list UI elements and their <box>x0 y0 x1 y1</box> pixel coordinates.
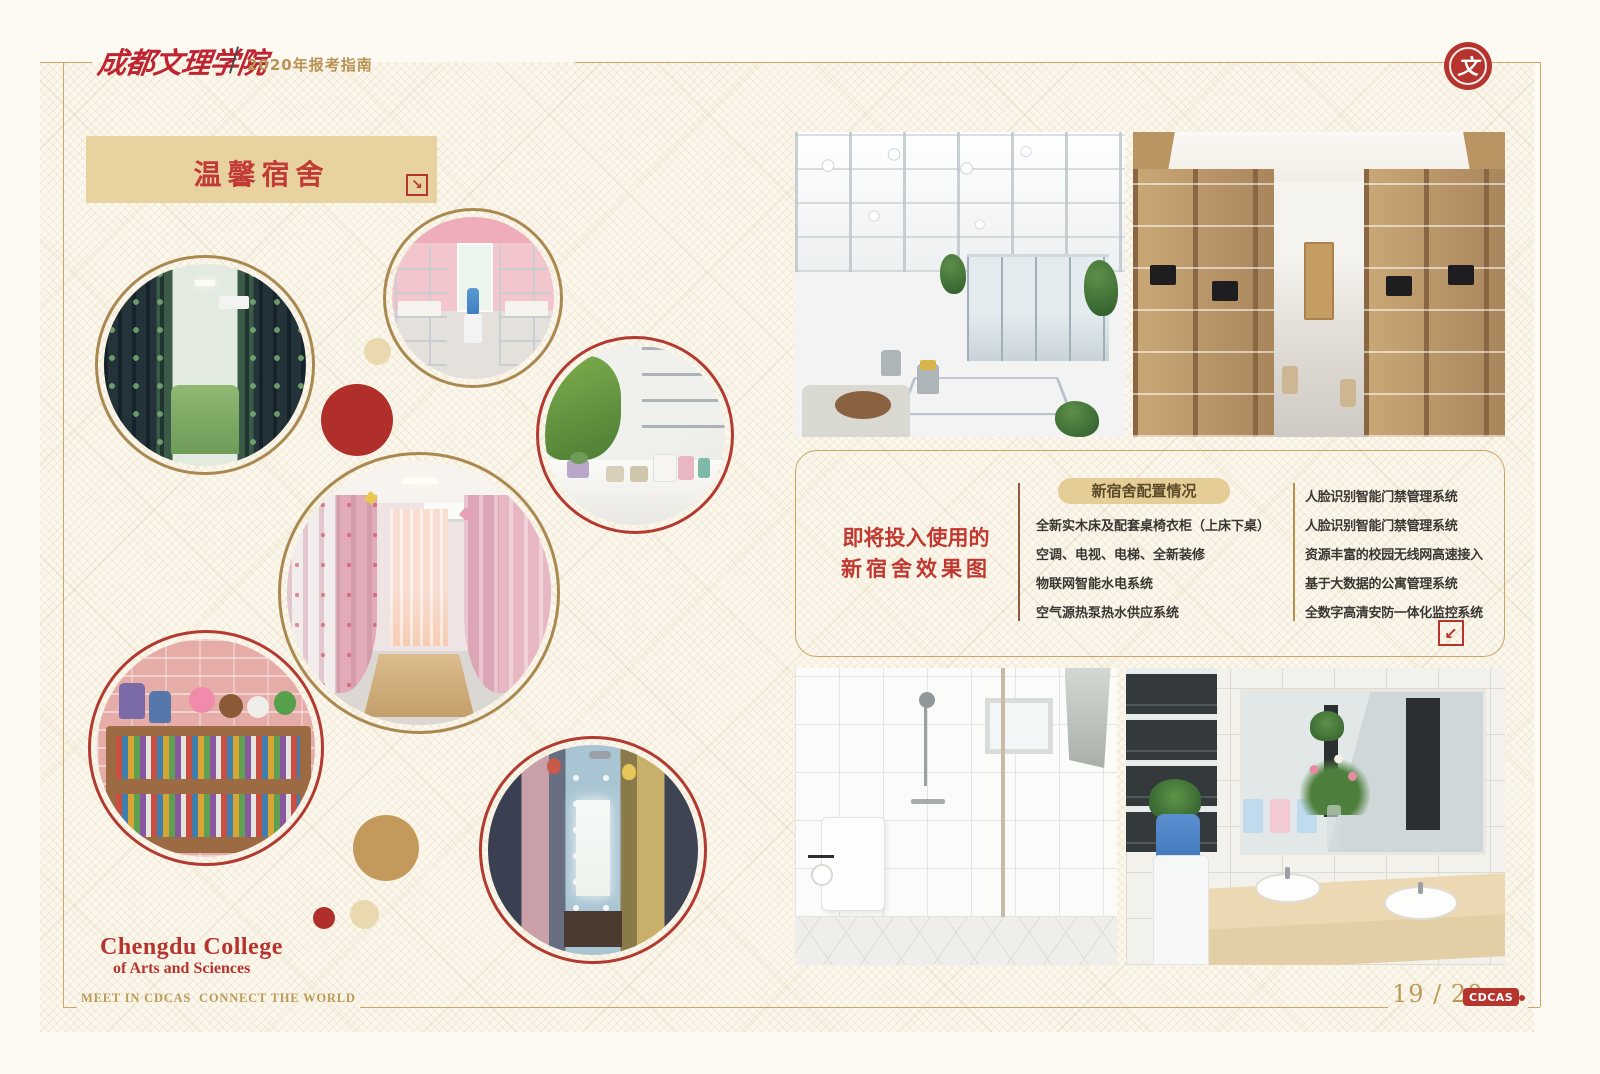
photo-circle-pink-curtain-room <box>278 452 560 734</box>
config-item: 空气源热泵热水供应系统 <box>1036 599 1270 628</box>
decor-dot-cream-top <box>364 338 391 365</box>
info-intro-line2: 新宿舍效果图 <box>824 554 1008 585</box>
curtains-left <box>287 495 377 693</box>
dark-table <box>564 911 623 947</box>
frame-line-right <box>1540 62 1541 1007</box>
balloon-decor-red <box>547 758 561 774</box>
bunk-desk-units-right <box>1364 169 1505 437</box>
water-jug <box>467 288 480 314</box>
towel-blue-1 <box>1243 799 1263 833</box>
succulent-plant <box>570 452 588 464</box>
colorful-dorm-photo <box>488 745 698 955</box>
decor-dot-red-large <box>321 384 393 456</box>
bright-window <box>576 800 610 897</box>
admission-guide-label: 2020年报考指南 <box>247 54 373 75</box>
bed-right <box>505 301 547 316</box>
door <box>1304 242 1334 320</box>
info-intro-line1: 即将投入使用的 <box>824 523 1008 554</box>
faucet-left <box>1285 867 1290 879</box>
photo-circle-pink-dorm <box>383 208 563 388</box>
beige-pot-2 <box>630 466 648 482</box>
plush-white-toy <box>247 696 269 718</box>
toilet-paper-roll <box>811 864 833 886</box>
decor-dot-cream-bottom <box>350 900 379 929</box>
frame-line-bottom-seg2 <box>360 1007 1388 1008</box>
photo-circle-forest-theme-dorm <box>95 255 315 475</box>
photo-circle-succulent-shelf <box>536 336 734 534</box>
cdcas-logo-badge: CDCAS <box>1463 988 1519 1006</box>
cistern <box>821 817 885 911</box>
paper-holder-bar <box>808 855 834 858</box>
towel-pink <box>1270 799 1290 833</box>
foreground-plant <box>1055 401 1099 437</box>
ceiling-fan <box>589 751 611 759</box>
sheer-center-curtain <box>390 509 448 646</box>
green-bedspread <box>171 385 240 454</box>
ceiling-light <box>195 280 215 286</box>
plush-bear-toy <box>219 694 243 718</box>
coffered-ceiling <box>795 132 1125 272</box>
wooden-table <box>364 654 475 717</box>
monitor-dark-1 <box>1150 265 1176 285</box>
water-dispenser <box>1153 855 1209 965</box>
frame-line-top-left-segment <box>40 62 92 63</box>
hanging-towel <box>1065 668 1111 768</box>
flower-vase <box>1327 805 1341 849</box>
frame-line-bottom-seg1 <box>63 1007 77 1008</box>
bed-left <box>398 301 440 316</box>
air-conditioner <box>219 296 249 309</box>
footer-slogan: MEET IN CDCAS CONNECT THE WORLD <box>81 991 356 1006</box>
config-item: 人脸识别智能门禁管理系统 <box>1305 512 1483 541</box>
window <box>985 698 1053 754</box>
config-item: 人脸识别智能门禁管理系统 <box>1305 483 1483 512</box>
green-cloth <box>545 356 621 460</box>
chair-2 <box>881 350 901 376</box>
config-badge: 新宿舍配置情况 <box>1058 478 1230 504</box>
faucet-right <box>1418 882 1423 894</box>
seal-glyph: 文 <box>1444 42 1492 90</box>
pink-dorm-photo <box>392 217 554 379</box>
brochure-page: 成都文理学院 2020年报考指南 文 温馨宿舍 ↘ <box>0 0 1600 1074</box>
mirror-reflection-frame-2 <box>1406 698 1440 830</box>
luggage-blue <box>149 691 171 723</box>
new-dorm-info-box: 即将投入使用的 新宿舍效果图 新宿舍配置情况 全新实木床及配套桌椅衣柜（上床下桌… <box>795 450 1505 657</box>
forest-curtain-left <box>104 264 165 466</box>
frame-line-bottom-seg3 <box>1528 1007 1540 1008</box>
round-table <box>835 391 891 418</box>
divider-maroon <box>1018 483 1020 621</box>
metal-rack <box>642 345 725 428</box>
school-seal-icon: 文 <box>1444 42 1492 90</box>
pink-curtain-room-photo <box>287 461 551 725</box>
chair-left <box>1282 366 1298 394</box>
plush-dino-toy <box>274 691 296 715</box>
mirror-reflection-plant <box>1310 711 1344 741</box>
yellow-cushion <box>920 360 936 370</box>
photo-circle-colorful-dorm <box>479 736 707 964</box>
monitor-dark-2 <box>1212 281 1238 301</box>
photo-shower-room <box>795 668 1117 965</box>
config-item: 空调、电视、电梯、全新装修 <box>1036 541 1270 570</box>
plant-on-dispenser <box>1149 779 1201 819</box>
corner-arrow-icon: ↘ <box>406 174 428 196</box>
college-english-name-line1: Chengdu College <box>100 934 283 961</box>
plush-pig-toy <box>189 687 215 713</box>
teal-bottle <box>698 458 710 478</box>
luggage-purple <box>119 683 145 719</box>
forest-dorm-photo <box>104 264 306 466</box>
config-item: 物联网智能水电系统 <box>1036 570 1270 599</box>
cdcas-logo-dot <box>1519 995 1525 1001</box>
water-dispenser <box>464 314 482 343</box>
photo-new-dorm-lobby-render <box>795 132 1125 437</box>
config-item: 全新实木床及配套桌椅衣柜（上床下桌） <box>1036 512 1270 541</box>
book-row-bottom <box>116 794 300 837</box>
decor-dot-tan <box>353 815 419 881</box>
config-item: 资源丰富的校园无线网高速接入 <box>1305 541 1483 570</box>
beige-pot-1 <box>606 466 624 482</box>
monitor-dark-3 <box>1386 276 1412 296</box>
white-mug <box>653 454 677 482</box>
photo-washroom-sinks <box>1126 668 1505 965</box>
forest-curtain-right <box>245 264 306 466</box>
config-list-left: 全新实木床及配套桌椅衣柜（上床下桌） 空调、电视、电梯、全新装修 物联网智能水电… <box>1036 512 1270 628</box>
balloon-decor-yellow <box>622 764 636 780</box>
bunk-desk-units-left <box>1133 169 1274 437</box>
section-title: 温馨宿舍 <box>86 153 437 193</box>
succulent-shelf-photo <box>545 345 725 525</box>
college-english-name-line2: of Arts and Sciences <box>113 960 250 978</box>
bookshelf-photo <box>97 639 315 857</box>
book-row-top <box>116 736 300 779</box>
divider-gold <box>1293 483 1295 621</box>
config-list-right: 人脸识别智能门禁管理系统 人脸识别智能门禁管理系统 资源丰富的校园无线网高速接入… <box>1305 483 1483 628</box>
monitor-dark-4 <box>1448 265 1474 285</box>
ceiling-light <box>403 477 437 484</box>
config-item: 基于大数据的公寓管理系统 <box>1305 570 1483 599</box>
info-intro-text: 即将投入使用的 新宿舍效果图 <box>824 523 1008 585</box>
shower-pipe <box>924 698 927 786</box>
shower-mixer <box>911 799 945 804</box>
photo-new-dorm-room-render <box>1133 132 1505 437</box>
photo-circle-bookshelf-toys <box>88 630 324 866</box>
shower-head <box>919 692 935 708</box>
tiled-floor <box>795 917 1117 965</box>
frame-line-left <box>63 62 64 1007</box>
frame-line-top-right-segment <box>575 62 1540 63</box>
wooden-bookshelf <box>106 726 311 852</box>
corner-arrow-icon: ↙ <box>1438 620 1464 646</box>
school-name-calligraphy: 成都文理学院 <box>95 40 269 82</box>
chair-right <box>1340 379 1356 407</box>
section-banner: 温馨宿舍 ↘ <box>86 136 437 203</box>
curtains-right <box>464 495 551 693</box>
decor-dot-red-small <box>313 907 335 929</box>
pink-tumbler <box>678 456 694 480</box>
